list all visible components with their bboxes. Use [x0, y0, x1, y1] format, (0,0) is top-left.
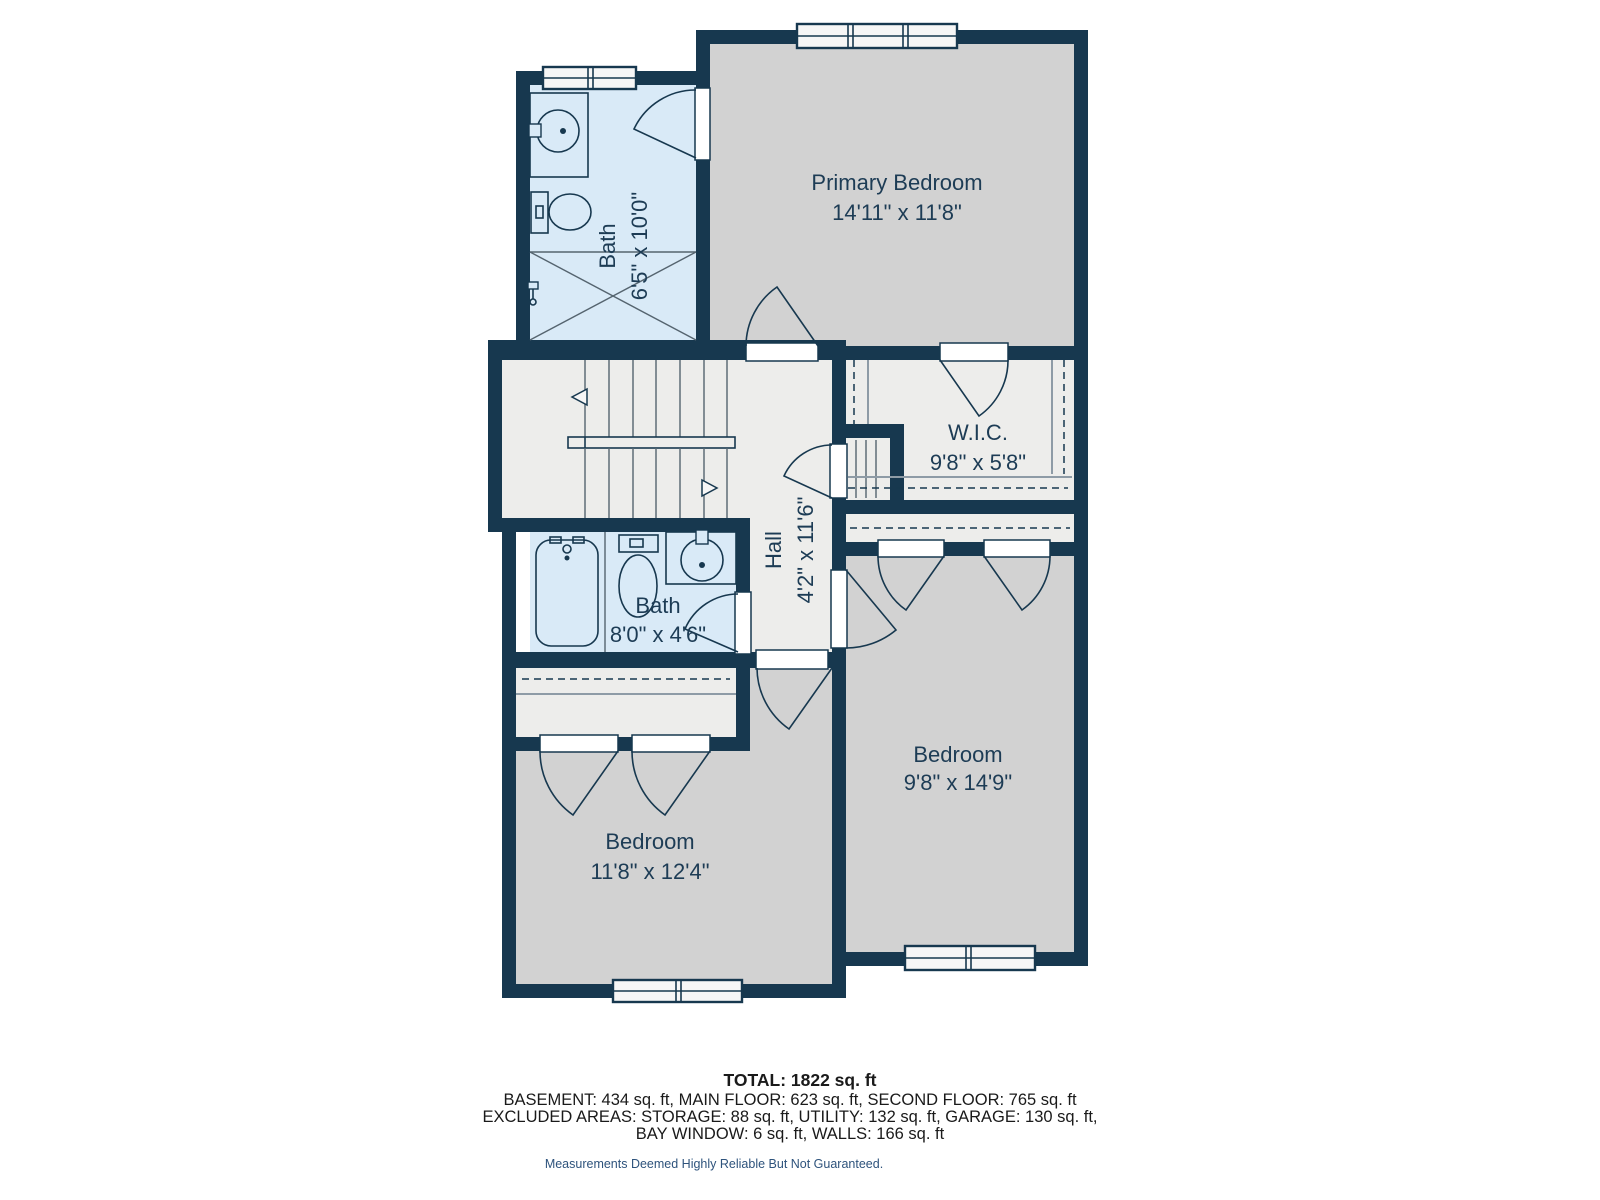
wall-segment: [488, 518, 750, 532]
wall-segment: [516, 71, 530, 354]
footer-excluded-areas-1: EXCLUDED AREAS: STORAGE: 88 sq. ft, UTIL…: [482, 1108, 1097, 1126]
stair-handrail: [568, 437, 735, 448]
bedroom-right-dims: 9'8" x 14'9": [904, 770, 1012, 795]
primary-bedroom-floor: [710, 44, 1074, 346]
footer: TOTAL: 1822 sq. ft BASEMENT: 434 sq. ft,…: [482, 1070, 1097, 1171]
footer-excluded-areas-2: BAY WINDOW: 6 sq. ft, WALLS: 166 sq. ft: [636, 1125, 945, 1143]
wall-segment: [488, 340, 502, 532]
wic-label: W.I.C.: [948, 420, 1008, 445]
floor-plan: Primary Bedroom 14'11" x 11'8" Bath 6'5"…: [0, 0, 1600, 1200]
wall-segment: [502, 737, 750, 751]
wall-segment: [1074, 30, 1088, 966]
footer-disclaimer: Measurements Deemed Highly Reliable But …: [545, 1157, 883, 1171]
footer-floor-areas: BASEMENT: 434 sq. ft, MAIN FLOOR: 623 sq…: [503, 1091, 1077, 1109]
footer-total: TOTAL: 1822 sq. ft: [724, 1070, 877, 1090]
primary-bedroom-dims: 14'11" x 11'8": [832, 200, 962, 225]
hall-dims: 4'2" x 11'6": [793, 497, 818, 604]
bath-upper-dims: 6'5" x 10'0": [627, 192, 652, 300]
window-bedroom-right: [905, 946, 1035, 970]
bath-lower-label: Bath: [635, 593, 680, 618]
wall-segment: [832, 500, 1088, 514]
bath-lower-dims: 8'0" x 4'6": [610, 622, 706, 647]
hall-label: Hall: [761, 531, 786, 569]
window-bath-upper: [543, 67, 636, 89]
bedroom-left-dims: 11'8" x 12'4": [590, 859, 709, 884]
bath-upper-label: Bath: [595, 223, 620, 268]
window-bedroom-left: [613, 980, 742, 1002]
wall-segment: [502, 518, 516, 998]
wall-segment: [832, 340, 846, 998]
window-primary-bedroom: [797, 24, 957, 48]
bath-upper-floor: [530, 85, 696, 340]
bedroom-left-label: Bedroom: [605, 829, 694, 854]
wall-segment: [890, 424, 904, 514]
primary-bedroom-label: Primary Bedroom: [811, 170, 982, 195]
bedroom-right-label: Bedroom: [913, 742, 1002, 767]
linen-closet-floor: [846, 438, 890, 500]
wic-dims: 9'8" x 5'8": [930, 450, 1026, 475]
